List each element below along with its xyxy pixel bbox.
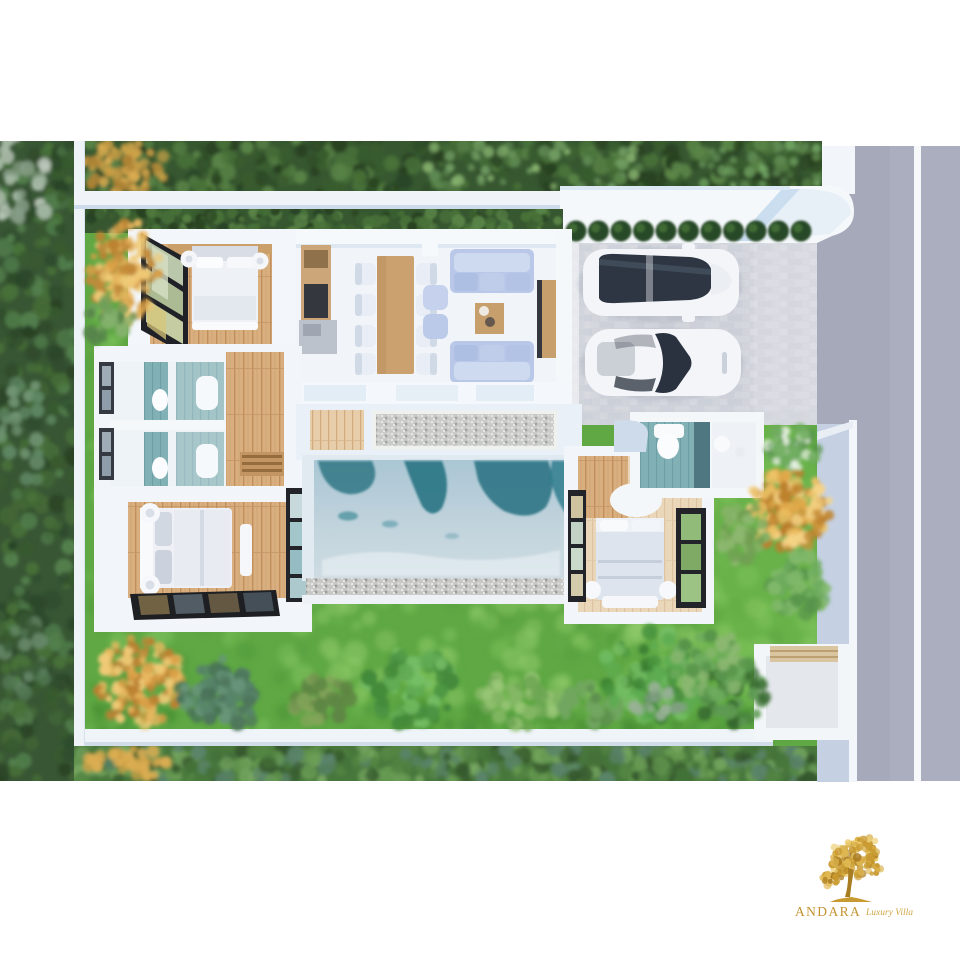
svg-text:Luxury Villa: Luxury Villa bbox=[865, 908, 913, 918]
svg-text:ANDARA: ANDARA bbox=[795, 904, 861, 919]
